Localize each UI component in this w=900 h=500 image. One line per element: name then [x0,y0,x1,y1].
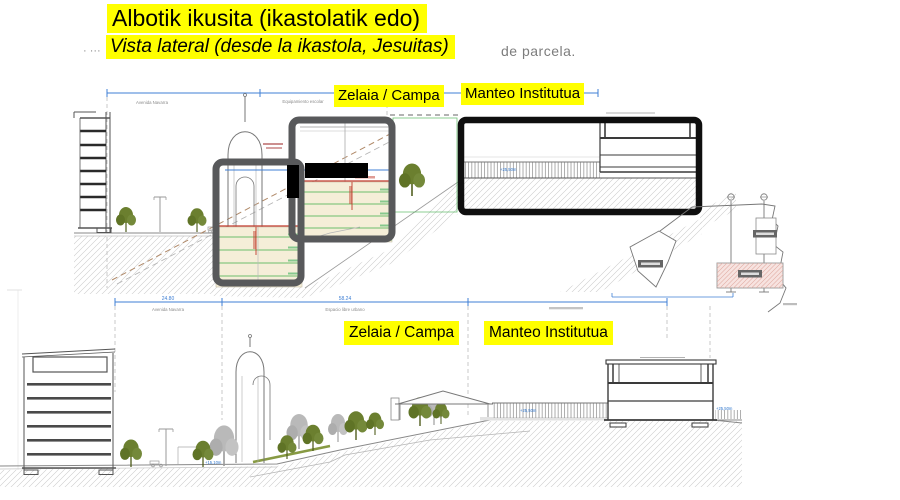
covered-text-left: · ··· [83,45,101,57]
slide-subtitle: Vista lateral (desde la ikastola, Jesuit… [106,35,455,59]
top-terrain-hatch [74,178,736,298]
bottom-terrain-hatch [0,420,742,487]
bottom-left-building [22,349,116,475]
top-street-caption: Avenida Navarra [136,100,169,105]
bottom-zone-caption: Espacio libre urbano [325,307,365,312]
slide: Avenida Navarra Equipamiento escolar [0,0,900,500]
slide-title: Albotik ikusita (ikastolatik edo) [107,4,427,33]
top-street-lamp [154,197,218,233]
label-top-zelaia-campa: Zelaia / Campa [334,85,444,107]
bottom-street-lamp [150,429,173,467]
covered-text-right: de parcela. [501,43,576,59]
manteo-building [604,358,717,428]
top-fence-level: +25,50m [500,167,517,172]
label-bottom-zelaia-campa: Zelaia / Campa [344,321,459,345]
top-left-building [74,112,112,233]
architectural-drawing: Avenida Navarra Equipamiento escolar [0,0,900,500]
top-zone-caption: Equipamiento escolar [282,99,324,104]
bottom-street-caption: Avenida Navarra [152,307,185,312]
bottom-dim-mid: 58.24 [339,296,352,302]
label-top-manteo-institutua: Manteo Institutua [461,83,584,105]
bottom-dim-left: 24.80 [162,296,175,302]
bottom-street-level: +15,10m [205,460,222,465]
plateau-level-right: +25,50m [716,406,733,411]
bottom-section-drawing: 24.80 58.24 Avenida Navarra Espacio libr… [0,290,743,487]
plateau-level-left: +25,50m [520,408,537,413]
label-bottom-manteo-institutua: Manteo Institutua [484,321,613,345]
